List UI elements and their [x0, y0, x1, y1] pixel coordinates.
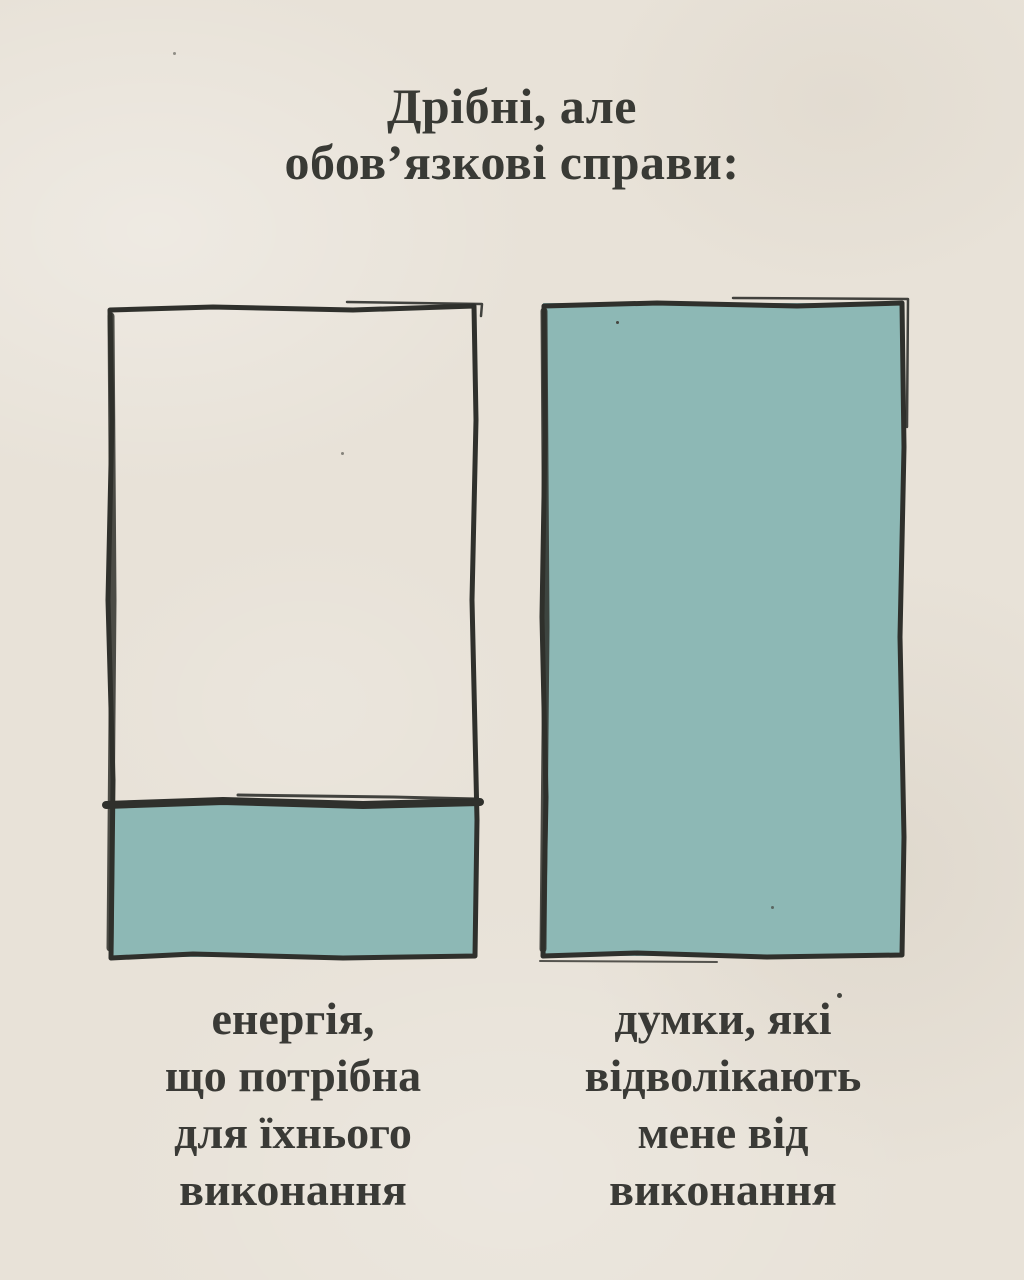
infographic-canvas: Дрібні, але обов’язкові справи: — [0, 0, 1024, 1280]
paper-speck — [771, 906, 774, 909]
page-title: Дрібні, але обов’язкові справи: — [0, 78, 1024, 190]
energy-container-box — [103, 300, 483, 963]
paper-speck — [616, 321, 619, 324]
thoughts-caption: думки, які відволікають мене від виконан… — [513, 990, 933, 1218]
paper-speck — [837, 993, 842, 998]
paper-speck — [341, 452, 344, 455]
energy-caption: енергія, що потрібна для їхнього виконан… — [83, 990, 503, 1218]
paper-speck — [173, 52, 176, 55]
energy-box-sketch-border-icon — [103, 300, 483, 963]
thoughts-container-box — [537, 297, 909, 963]
thoughts-box-sketch-border-icon — [537, 297, 909, 963]
